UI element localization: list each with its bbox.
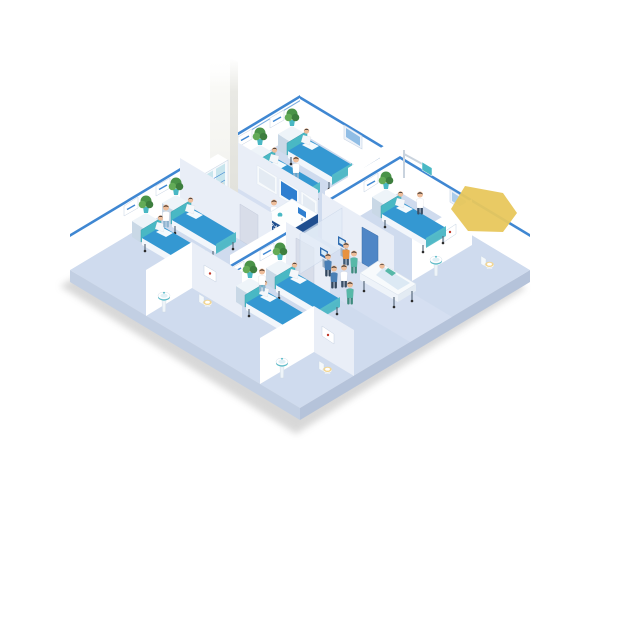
hospital-scene-svg: 护士站 <box>0 0 640 640</box>
water-bottle-icon <box>278 213 283 219</box>
hospital-isometric-illustration: 护士站 <box>0 0 640 640</box>
